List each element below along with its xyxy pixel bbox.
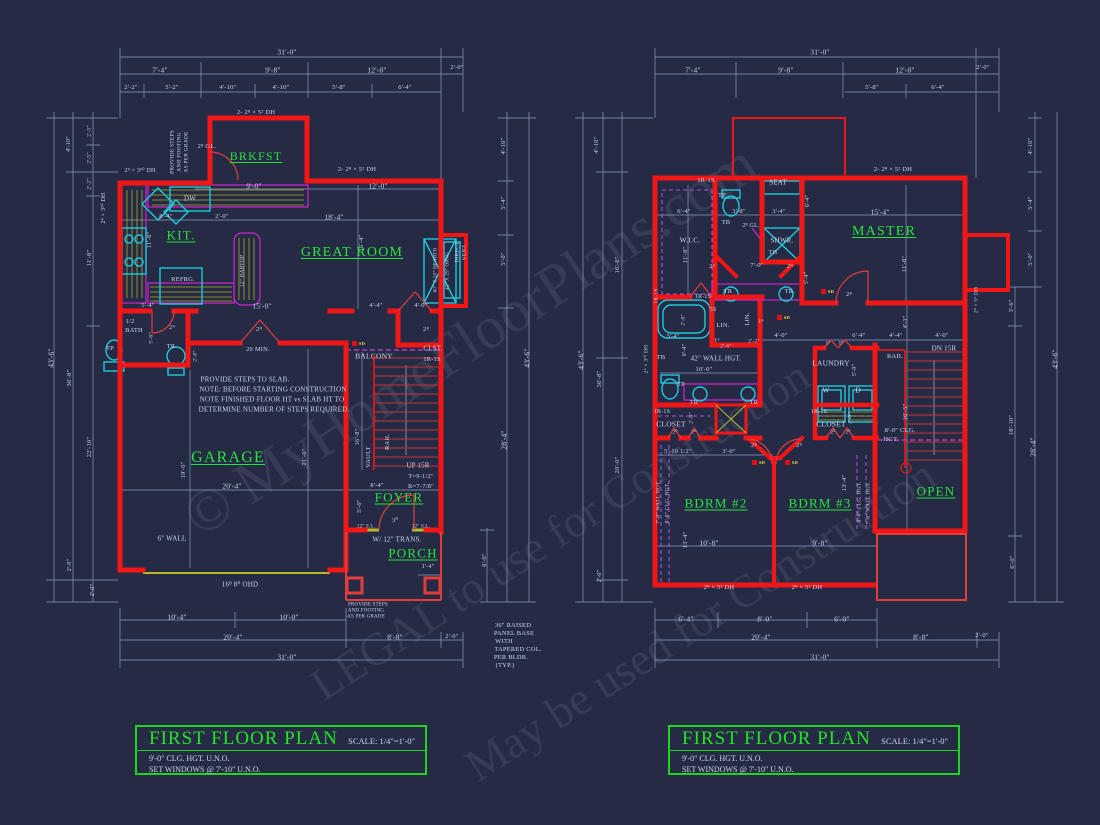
dim-label: 4'-4" [369, 303, 383, 310]
dim-label: BALCONY [355, 352, 393, 360]
dim-label: 1R-1S [654, 288, 660, 303]
dim-label: 28'-4" [500, 430, 508, 449]
dim-label: 12'-0" [367, 66, 386, 74]
dim-label: 5'-4" [804, 272, 810, 285]
dim-label: 2⁸ [256, 327, 262, 334]
dim-label: 6'-4" [678, 615, 693, 623]
dim-label: DW [184, 196, 196, 203]
dim-label: 11'-8" [147, 232, 154, 249]
dim-label: 2'-0" [193, 350, 199, 362]
dim-label: 4'-3" [903, 316, 909, 329]
dim-label: TR [690, 400, 699, 407]
dim-label: 1'-4" [422, 564, 435, 570]
dim-label: CLOSET [816, 420, 846, 428]
dim-label: W.I.C. [680, 236, 701, 244]
dim-label: 7'-0" [750, 263, 764, 270]
dim-label: 22'-10" [87, 437, 94, 457]
dim-label: 43'-6" [523, 348, 531, 367]
dim-label: 10'-4" [167, 613, 186, 621]
dim-label: TB [722, 220, 731, 227]
dim-label: TB [769, 250, 778, 257]
dim-label: DN 15R [932, 346, 957, 353]
dim-label: 2⁴ [787, 264, 793, 271]
dim-label: RAIL [385, 434, 392, 450]
dim-label: 8'-0" CLG. [885, 428, 916, 435]
dim-label: 2⁸ GL. [198, 144, 217, 151]
dim-label: 2'-0" [975, 633, 989, 640]
dim-label: 6'-4" [682, 344, 688, 357]
dim-label: 2⁸ [846, 292, 852, 299]
dim-label: 3'-4" [772, 209, 786, 216]
dim-label: 2- 2⁸ × 5² DH [874, 167, 912, 174]
dim-label: 5'-0" [357, 499, 364, 513]
dim-label: 5'-4" [141, 303, 155, 310]
dim-label: 5S [710, 307, 717, 313]
x-box-chase [716, 405, 746, 433]
plan-scale-left: SCALE: 1/4"=1'-0" [348, 736, 415, 746]
dim-label: 2'-2" [124, 85, 138, 92]
dim-label: 6" WALL [158, 536, 187, 543]
dim-label: 15'-4" [870, 208, 889, 216]
dim-label: 20 MIN. [246, 347, 270, 354]
dim-label: NOTE: BEFORE STARTING CONSTRUCTION [199, 387, 346, 394]
dim-label: PROVIDE STEPS [348, 603, 388, 608]
plan-note-windows-right: SET WINDOWS @ 7'-10" U.N.O. [682, 764, 946, 775]
dim-label: 1⁶ [714, 338, 720, 344]
dim-label: 11'-8" [87, 250, 94, 267]
dim-label: 1R-1S [654, 409, 670, 415]
dim-label: 16'-5" [903, 404, 910, 421]
dim-label: SHWR. [771, 238, 794, 245]
dim-label: 2⁸ GL. [742, 223, 759, 229]
dim-label: PROVIDE STEPS TO SLAB. [201, 377, 290, 384]
dim-label: TAPERED COL. [494, 647, 541, 654]
dim-label: 5'-0" [501, 252, 508, 266]
room-label: OPEN [917, 485, 956, 498]
dim-label: DIRECT [455, 241, 461, 262]
dim-label: AS PER GRADE [347, 615, 385, 620]
dim-label: 6'-4" [677, 209, 691, 216]
dim-label: 18'-4" [324, 213, 343, 221]
dim-label: TP [106, 346, 114, 353]
dim-label: 2⁰ [830, 430, 835, 436]
dim-label: 2⁰ [845, 430, 850, 436]
dim-label: TP [718, 193, 726, 200]
smoke-detector-label: SD [784, 316, 790, 321]
dim-label: W [822, 386, 829, 394]
dim-label: 4'-10" [594, 137, 601, 154]
dim-label: D [855, 386, 861, 394]
dim-label: 1R-1S [811, 409, 827, 415]
dim-label: 2- 2⁸ × 5² DH [237, 110, 275, 117]
dim-label: 3⁰ [392, 518, 398, 525]
dim-label: 15'-0" [252, 302, 271, 310]
dim-label: (TYP.) [496, 663, 515, 670]
dim-label: 9'-8" [265, 66, 280, 74]
dim-label: 2⁸ × 5² DH [704, 585, 735, 592]
dim-label: 8'-0" [757, 615, 772, 623]
title-block-right: FIRST FLOOR PLAN SCALE: 1/4"=1'-0" 9'-0"… [668, 725, 960, 775]
dim-label: 12" BARTOP [240, 255, 246, 287]
plan-title-right: FIRST FLOOR PLAN [682, 728, 871, 750]
dim-label: 5'-8" [332, 85, 346, 92]
dim-label: 5'-10 1/2" [664, 449, 692, 456]
dim-label: 7'-4" [152, 66, 167, 74]
dim-label: AND FOOTING [177, 132, 183, 172]
dim-label: 10'-0" [696, 367, 713, 374]
dim-label: 42" WALL HGT. [691, 356, 742, 363]
dim-label: 7'-0" WALL HGT. [656, 480, 662, 524]
plan-note-clg-right: 9'-0" CLG. HGT. U.N.O. [682, 753, 946, 764]
smoke-detector-label: SD [828, 290, 834, 295]
dim-label: 6'-4" [398, 85, 412, 92]
dim-label: 42" X 29" OPNG [446, 252, 451, 290]
dim-label: 3'-0" [722, 449, 736, 456]
dim-label: 43'-6" [47, 348, 55, 367]
dim-label: 4'-0" [414, 303, 428, 310]
dim-label: 2'-5" [87, 152, 93, 164]
dim-label: 1⁶ [825, 341, 830, 347]
floorplan-canvas [0, 0, 1100, 825]
dim-label: 9'-8" [778, 66, 793, 74]
dim-label: REFRG. [171, 277, 195, 284]
dim-label: 19'-0" [181, 462, 188, 479]
dim-label: 20'-4" [223, 633, 242, 641]
dim-label: 13'-4" [683, 532, 690, 549]
plan-scale-right: SCALE: 1/4"=1'-0" [881, 736, 948, 746]
dim-label: 12" S.L. [412, 525, 430, 530]
dim-label: 2⁰ [672, 430, 677, 436]
dim-label: LIN. [716, 323, 729, 330]
dim-label: 36'-8" [67, 370, 74, 387]
dim-label: 4'-10" [66, 136, 72, 152]
dim-label: 36'-8" [597, 371, 604, 388]
dim-label: 6'-0" [1010, 555, 1017, 569]
dim-label: NOTE FINISHED FLOOR HT vs SLAB HT TO [200, 397, 345, 404]
title-block-left: FIRST FLOOR PLAN SCALE: 1/4"=1'-0" 9'-0"… [135, 725, 427, 775]
room-label: BDRM #2 [685, 497, 748, 510]
dim-label: 10'-8" [699, 539, 718, 547]
dim-label: 4'-0" [935, 333, 949, 340]
dim-label: 8'-0" CLG. HGT. [665, 483, 671, 524]
dim-label: 2⁸ × 5² DH [974, 287, 980, 313]
dim-label: HGT. [883, 437, 898, 444]
dim-label: 8'-4" [370, 483, 384, 490]
dim-label: 9'-0" [246, 182, 261, 190]
dim-label: 2'-0" [90, 584, 96, 597]
dim-label: 5'-0" [852, 364, 858, 377]
plan-note-clg-left: 9'-0" CLG. HGT. U.N.O. [149, 753, 413, 764]
dim-label: 2'-2" [748, 339, 760, 345]
dim-label: 4'-4" [889, 333, 903, 340]
dim-label: 10'-0" [279, 613, 298, 621]
dim-label: 9'-8" [812, 539, 827, 547]
room-label: KIT. [167, 229, 196, 242]
dim-label: TP [677, 382, 685, 389]
dim-label: 6'-4" [852, 333, 866, 340]
dim-label: 7'-0" WALL HGT. [866, 481, 872, 525]
dim-label: 1⁶ [838, 341, 843, 347]
dim-label: TR [785, 289, 794, 296]
dim-label: 18'-10" [1009, 415, 1016, 435]
dim-label: 20'-4" [222, 482, 241, 490]
dim-label: 7'-4" [685, 66, 700, 74]
dim-label: W/ 12" TRANS. [372, 537, 421, 544]
room-label: FOYER [375, 491, 424, 504]
dim-label: TR [724, 289, 733, 296]
smoke-detector-label: SD [759, 461, 765, 466]
dim-label: 2⁴ × 3¹⁰ DH [101, 192, 107, 223]
dim-label: 5'-0" [1028, 252, 1035, 266]
dim-label: 5'-4" [1028, 196, 1035, 210]
dim-label: 5'-8" [149, 332, 155, 344]
dim-label: 3'-8" [732, 209, 746, 216]
dim-label: 6'-4" [931, 85, 945, 92]
dim-label: DETERMINE NUMBER OF STEPS REQUIRED. [199, 407, 350, 414]
dim-label: 5'-8" [865, 85, 879, 92]
dim-label: 2⁸ × 5² DH [792, 585, 823, 592]
dim-label: TR [750, 400, 759, 407]
dim-label: 20'-0" [615, 457, 622, 474]
smoke-detector-label: SD [792, 461, 798, 466]
dim-label: AS PER GRADE [184, 131, 190, 172]
dim-label: 1R-1S [697, 178, 715, 185]
dim-label: 6'-4" [805, 195, 811, 208]
dim-label: LIN. [745, 312, 752, 325]
dim-label: 2⁴ [169, 325, 175, 332]
dim-label: 2⁸ [796, 443, 802, 450]
dim-label: 8'-4" [159, 214, 173, 221]
dim-label: 2'-2" [87, 178, 93, 190]
dim-label: UP 15R [406, 463, 429, 470]
plan-note-windows-left: SET WINDOWS @ 7'-10" U.N.O. [149, 764, 413, 775]
dim-label: VAULT [366, 446, 373, 468]
dim-label: 1R-1S [695, 294, 711, 300]
dim-label: 60" X 20" HEARTH [434, 248, 439, 293]
dim-label: 43'-6" [1051, 349, 1059, 368]
dim-label: CLST. [423, 346, 442, 353]
dim-label: SEAT [769, 180, 787, 187]
smoke-detector-label: SD [359, 342, 365, 347]
dim-label: 16'-8" [615, 257, 622, 274]
dim-label: 2⁴ [709, 264, 715, 271]
dim-label: 2'-5" [87, 125, 93, 137]
dim-label: WITH [495, 639, 513, 646]
dim-label: 21'-0" [302, 449, 309, 466]
dim-label: 11'-8" [683, 247, 690, 264]
dim-label: PER BLDR. [494, 655, 528, 662]
room-label: BRKFST [230, 150, 283, 162]
dim-label: 1⁴ [758, 319, 764, 325]
dim-label: 43'-6" [577, 350, 585, 369]
dim-label: 2'-6" [689, 412, 695, 424]
dim-label: 2'-0" [445, 634, 459, 641]
dim-label: TB [657, 355, 666, 362]
dim-label: 4'-10" [501, 138, 508, 155]
dim-label: 2- 2⁸ × 5² DH [338, 167, 376, 174]
room-label: MASTER [852, 225, 916, 239]
dim-label: 2⁴ × 3¹⁰ DH [644, 345, 650, 374]
dim-label: PANEL BASE [494, 631, 534, 638]
dim-label: 28'-4" [1029, 437, 1037, 456]
dim-label: 8'-8" [387, 633, 402, 641]
plan-title-left: FIRST FLOOR PLAN [149, 728, 338, 750]
dim-label: 1R-1S [423, 357, 441, 364]
dim-label: 16'-8" [355, 429, 362, 446]
dim-label: 5'-4" [501, 196, 508, 210]
dim-label: 2'-0" [215, 214, 229, 221]
dim-label: 2'-0" [450, 65, 464, 72]
room-label: GARAGE [191, 450, 265, 466]
dim-label: 11'-8" [902, 256, 909, 273]
dim-label: BATH [125, 328, 143, 335]
dim-label: 5'-2" [165, 85, 179, 92]
dim-label: 2⁴ × 3¹⁰ DH [124, 168, 155, 174]
dim-label: 31'-0" [810, 653, 829, 661]
room-label: GREAT ROOM [301, 246, 403, 260]
dim-label: 12'-0" [895, 66, 914, 74]
dim-label: 2'-6" [720, 344, 732, 350]
dim-label: 8'-0" CLG. HGT. [857, 482, 863, 523]
dim-label: 12" S.L. [357, 525, 375, 530]
dim-label: 2'-6" [848, 412, 854, 424]
dim-label: PROVIDE STEPS [170, 130, 176, 174]
dim-label: 4'-10" [220, 85, 237, 92]
dim-label: 5'-4" [667, 334, 680, 340]
dim-label: 2'-8" [681, 314, 687, 326]
dim-label: 2⁸ [751, 443, 757, 450]
room-label: BDRM #3 [789, 497, 852, 510]
dim-label: 4'-10" [273, 85, 290, 92]
dim-label: 2⁰ [691, 430, 696, 436]
floor-plan-sheet: © MyHomeFloorPlans.com LEGAL to use for … [0, 0, 1100, 825]
room-label: PORCH [388, 547, 437, 560]
dim-label: 6'-0" [482, 553, 489, 567]
dim-label: 2⁸ [423, 327, 429, 334]
dim-label: 6'-0" [834, 615, 849, 623]
dim-label: RAIL [887, 354, 903, 361]
dim-label: 31'-0" [810, 48, 829, 56]
dim-label: VENT. [462, 244, 468, 261]
dim-label: LAUNDRY [812, 359, 850, 367]
dim-label: 3'-6" [1009, 300, 1015, 313]
dim-label: 20'-4" [751, 633, 770, 641]
dim-label: 8'-8" [913, 633, 928, 641]
dim-label: 2'-0" [597, 570, 603, 583]
dim-label: 1/2 [126, 319, 135, 326]
dim-label: TR [167, 344, 176, 351]
dim-label: 16⁸ 8⁰ OHD [222, 582, 258, 589]
dim-label: 31'-0" [277, 653, 296, 661]
dim-label: 4'-10" [1028, 138, 1035, 155]
dim-label: 4'-0" [774, 333, 788, 340]
dim-label: 36" RAISED [495, 623, 531, 630]
dim-label: 31'-0" [277, 48, 296, 56]
dim-label: T=9-1/2" [408, 474, 434, 481]
dim-label: 2'-0" [67, 559, 73, 572]
dim-label: 13'-4" [842, 475, 849, 492]
dim-label: AND FOOTING [348, 609, 384, 614]
dim-label: 12'-0" [368, 182, 387, 190]
dim-label: 2'-0" [976, 65, 990, 72]
dim-label: CLOSET [656, 420, 686, 428]
